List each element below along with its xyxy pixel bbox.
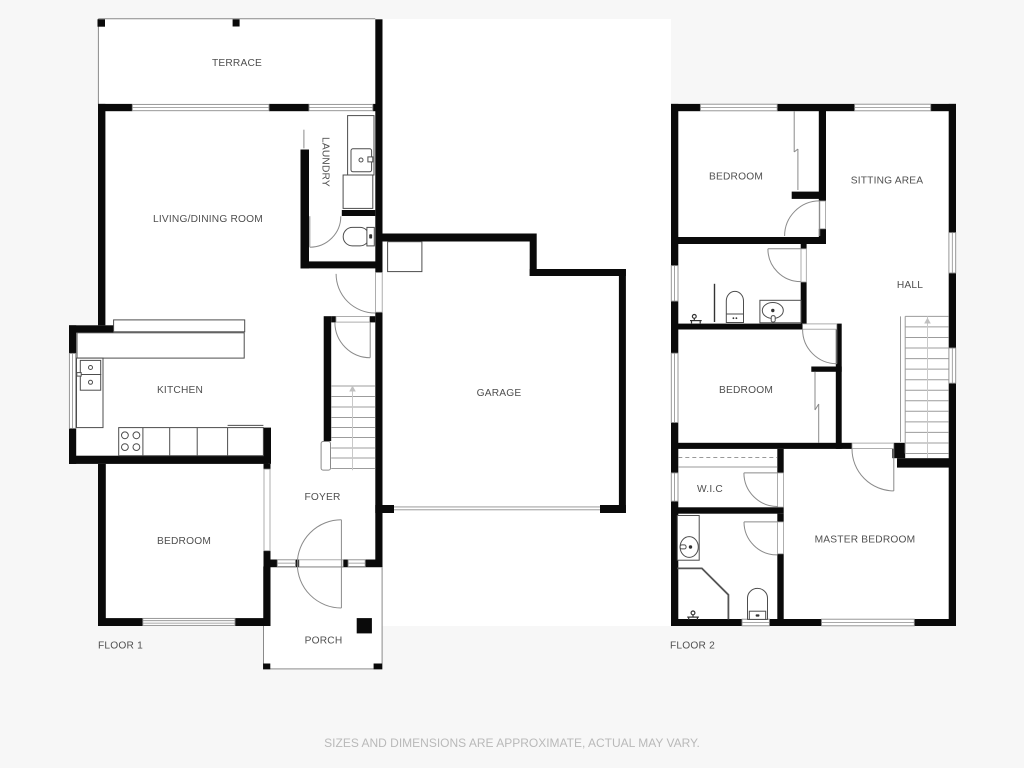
svg-text:MASTER BEDROOM: MASTER BEDROOM <box>815 535 916 546</box>
svg-text:FLOOR 2: FLOOR 2 <box>670 641 715 652</box>
svg-text:BEDROOM: BEDROOM <box>709 172 763 183</box>
svg-text:LIVING/DINING ROOM: LIVING/DINING ROOM <box>153 214 263 225</box>
svg-text:FLOOR 1: FLOOR 1 <box>98 641 143 652</box>
svg-text:LAUNDRY: LAUNDRY <box>320 137 331 187</box>
svg-text:BEDROOM: BEDROOM <box>157 536 211 547</box>
svg-text:KITCHEN: KITCHEN <box>157 385 203 396</box>
svg-text:W.I.C: W.I.C <box>697 484 723 495</box>
svg-text:HALL: HALL <box>897 280 923 291</box>
svg-text:SITTING AREA: SITTING AREA <box>851 176 924 187</box>
svg-text:TERRACE: TERRACE <box>212 58 262 69</box>
svg-text:BEDROOM: BEDROOM <box>719 385 773 396</box>
svg-text:PORCH: PORCH <box>305 636 343 647</box>
svg-text:SIZES AND DIMENSIONS ARE APPRO: SIZES AND DIMENSIONS ARE APPROXIMATE, AC… <box>324 736 700 750</box>
svg-text:FOYER: FOYER <box>304 492 340 503</box>
svg-text:GARAGE: GARAGE <box>477 388 522 399</box>
